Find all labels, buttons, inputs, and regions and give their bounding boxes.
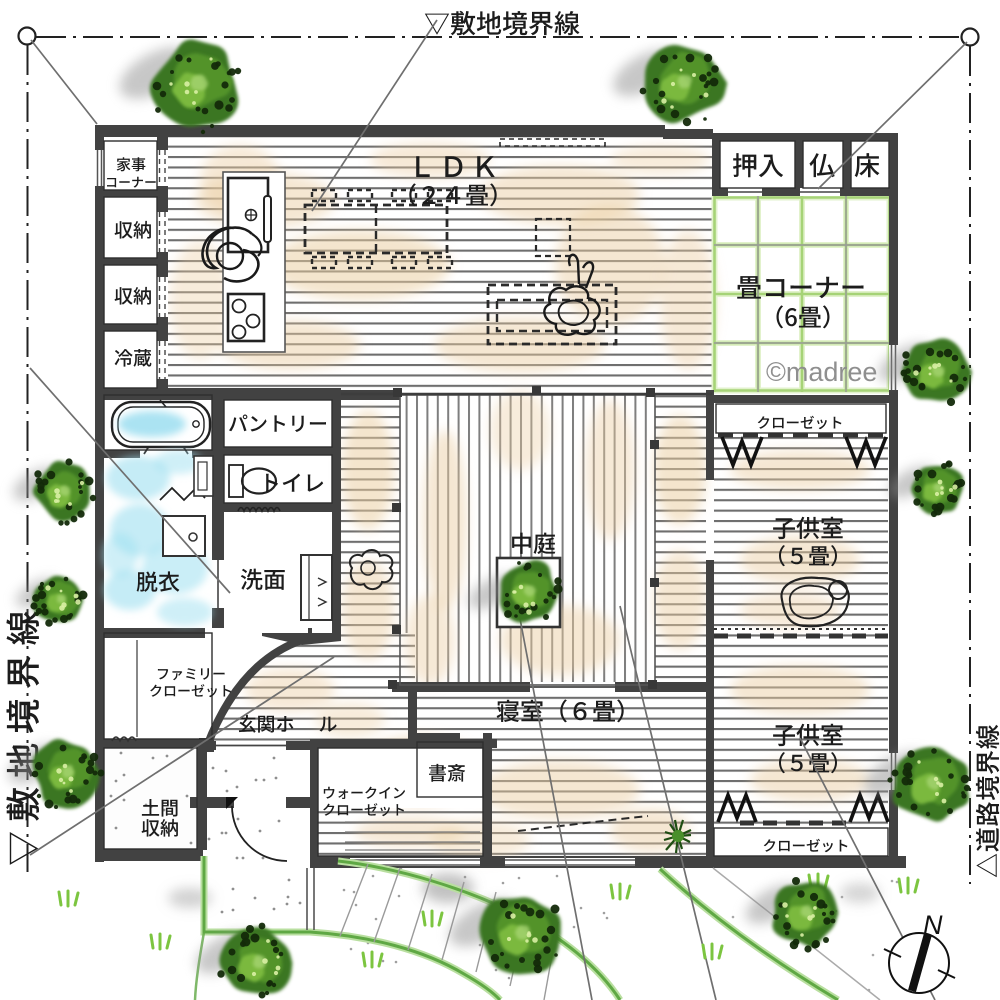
svg-text:N: N bbox=[923, 910, 943, 940]
svg-text:©madree: ©madree bbox=[766, 357, 877, 387]
